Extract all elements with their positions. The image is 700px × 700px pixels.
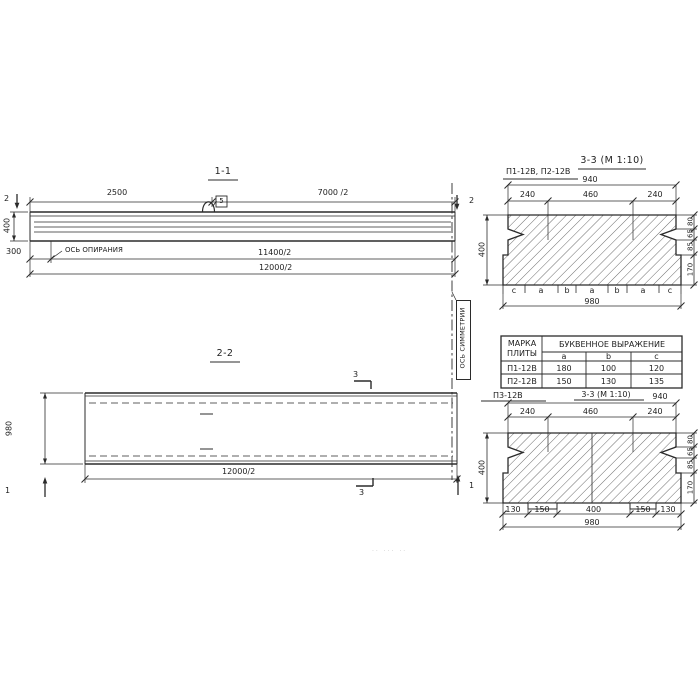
dim-240-c-label: 240 bbox=[505, 407, 550, 416]
dim-240-d-label: 240 bbox=[633, 407, 677, 416]
bearing-axis-label: ОСЬ ОПИРАНИЯ bbox=[65, 246, 123, 255]
dim-85-top-label: 85 bbox=[687, 235, 696, 259]
table-row1-b: 100 bbox=[586, 364, 631, 373]
letter-a1: a bbox=[533, 286, 549, 295]
dim-12000-2-plan-label: 12000/2 bbox=[222, 467, 255, 476]
letter-a2: a bbox=[584, 286, 600, 295]
dim-150-b-label: 150 bbox=[628, 505, 658, 514]
dim-170-top-label: 170 bbox=[687, 258, 696, 282]
dim-300-label: 300 bbox=[6, 247, 21, 256]
table-row1-c: 120 bbox=[631, 364, 682, 373]
dim-400-bottom-label: 400 bbox=[558, 505, 629, 514]
letter-a3: a bbox=[635, 286, 651, 295]
dim-240-a-label: 240 bbox=[505, 190, 550, 199]
section-1-1-title: 1-1 bbox=[206, 167, 240, 176]
table-row1-mark: П1-12В bbox=[502, 364, 542, 373]
cut-mark-1-left: 1 bbox=[1, 486, 14, 495]
letter-b2: b bbox=[609, 286, 625, 295]
table-header-expression: БУКВЕННОЕ ВЫРАЖЕНИЕ bbox=[542, 340, 682, 349]
dim-150-a-label: 150 bbox=[527, 505, 557, 514]
section-2-2-title: 2-2 bbox=[208, 349, 242, 358]
section-3-3-top-title: 3-3 (М 1:10) bbox=[570, 156, 654, 165]
dim-400-sec33-bottom-label: 400 bbox=[478, 453, 487, 483]
dim-400-sec33-top-label: 400 bbox=[478, 235, 487, 265]
dim-2500-label: 2500 bbox=[87, 188, 147, 197]
letter-b1: b bbox=[559, 286, 575, 295]
cut-mark-2-left: 2 bbox=[0, 194, 13, 203]
table-row2-a: 150 bbox=[542, 377, 586, 386]
cut-mark-3-top: 3 bbox=[349, 370, 362, 379]
lifting-loop-flag-label: 5 bbox=[216, 197, 227, 206]
dim-980-bottom-label: 980 bbox=[562, 518, 622, 527]
dim-12000-2-label: 12000/2 bbox=[259, 263, 292, 272]
table-row1-a: 180 bbox=[542, 364, 586, 373]
cut-mark-3-bottom: 3 bbox=[355, 488, 368, 497]
dim-940-top-label: 940 bbox=[565, 175, 615, 184]
cut-mark-1-right: 1 bbox=[465, 481, 478, 490]
cut-mark-2-right: 2 bbox=[465, 196, 478, 205]
dim-460-label: 460 bbox=[548, 190, 633, 199]
table-row2-b: 130 bbox=[586, 377, 631, 386]
dim-940-bottom-label: 940 bbox=[645, 392, 675, 401]
section-3-3-top-marks: П1-12В, П2-12В bbox=[506, 167, 570, 176]
dim-11400-2-label: 11400/2 bbox=[258, 248, 291, 257]
dim-460-b-label: 460 bbox=[548, 407, 633, 416]
drawing-sheet: 1-1 2500 7000 /2 2 2 400 300 ОСЬ ОПИРАНИ… bbox=[0, 0, 700, 700]
table-col-b: b bbox=[586, 352, 631, 361]
symmetry-axis-label: ОСЬ СИММЕТРИИ bbox=[459, 309, 468, 369]
dim-400-left-label: 400 bbox=[3, 211, 12, 241]
letter-c1: c bbox=[506, 286, 522, 295]
table-row2-c: 135 bbox=[631, 377, 682, 386]
dim-980-top-label: 980 bbox=[562, 297, 622, 306]
drawing-linework bbox=[0, 0, 700, 700]
section-1-1-lines bbox=[10, 180, 459, 278]
scan-artifact: ·· ··· ·· bbox=[372, 548, 452, 555]
table-row2-mark: П2-12В bbox=[502, 377, 542, 386]
section-3-3-bottom-title: 3-3 (М 1:10) bbox=[568, 390, 644, 399]
dim-170-bottom-label: 170 bbox=[687, 476, 696, 500]
section-2-2-lines bbox=[40, 362, 461, 497]
dim-130-b-label: 130 bbox=[655, 505, 681, 514]
table-header-plity: ПЛИТЫ bbox=[502, 349, 542, 358]
dim-85-bottom-label: 85 bbox=[687, 453, 696, 477]
table-col-c: c bbox=[631, 352, 682, 361]
letter-c2: c bbox=[662, 286, 678, 295]
dim-240-b-label: 240 bbox=[633, 190, 677, 199]
table-header-marka: МАРКА bbox=[502, 339, 542, 348]
dim-7000-2-label: 7000 /2 bbox=[303, 188, 363, 197]
section-3-3-bottom-mark: П3-12В bbox=[493, 391, 523, 400]
table-col-a: a bbox=[542, 352, 586, 361]
dim-130-a-label: 130 bbox=[500, 505, 526, 514]
dim-980-plan-label: 980 bbox=[5, 414, 14, 444]
